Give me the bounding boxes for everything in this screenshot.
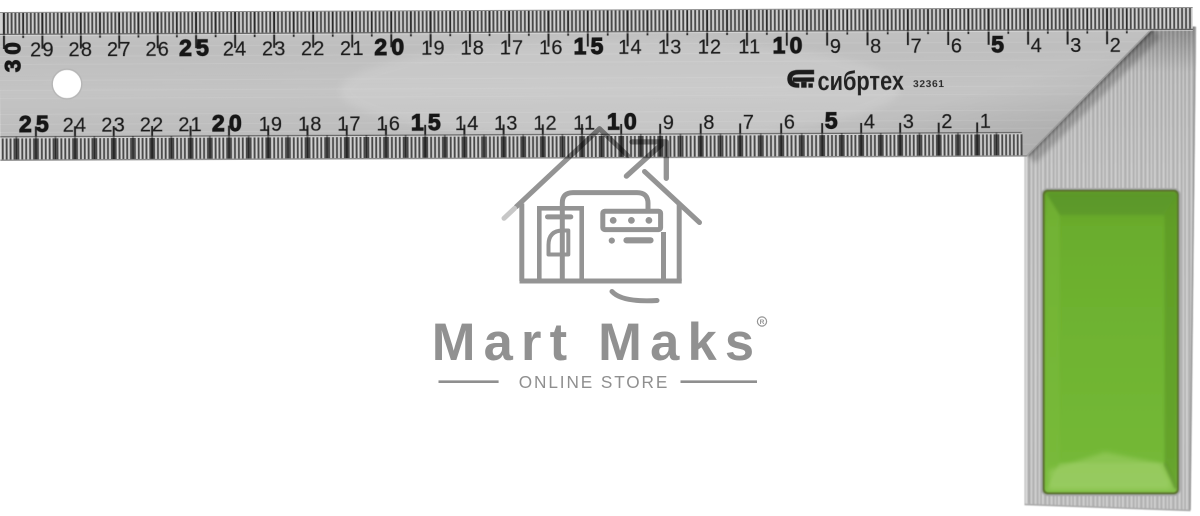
- svg-text:21: 21: [340, 38, 365, 60]
- svg-text:24: 24: [63, 115, 88, 137]
- svg-text:20: 20: [212, 110, 246, 136]
- svg-text:22: 22: [301, 38, 326, 60]
- svg-text:7: 7: [910, 36, 922, 58]
- svg-text:10: 10: [773, 32, 807, 58]
- svg-text:25: 25: [179, 35, 213, 61]
- svg-text:15: 15: [574, 33, 608, 59]
- svg-text:19: 19: [259, 114, 284, 136]
- svg-text:27: 27: [107, 39, 132, 61]
- svg-text:14: 14: [455, 113, 480, 135]
- svg-text:16: 16: [539, 37, 564, 59]
- svg-text:24: 24: [223, 38, 248, 60]
- svg-text:11: 11: [738, 36, 761, 58]
- svg-text:7: 7: [743, 112, 755, 134]
- svg-text:17: 17: [337, 114, 362, 136]
- svg-text:25: 25: [19, 111, 53, 137]
- svg-text:5: 5: [825, 108, 842, 134]
- svg-text:12: 12: [698, 36, 723, 58]
- svg-text:19: 19: [421, 38, 446, 60]
- svg-text:3: 3: [1070, 35, 1082, 57]
- svg-text:2: 2: [1110, 35, 1122, 57]
- svg-text:30: 30: [0, 37, 25, 72]
- svg-text:20: 20: [374, 34, 408, 60]
- svg-text:32361: 32361: [913, 79, 945, 90]
- svg-text:R: R: [760, 319, 765, 326]
- svg-text:4: 4: [1031, 35, 1043, 57]
- svg-text:17: 17: [500, 37, 525, 59]
- svg-text:16: 16: [376, 114, 401, 136]
- svg-text:14: 14: [618, 37, 643, 59]
- svg-text:6: 6: [784, 112, 796, 134]
- svg-text:2: 2: [941, 111, 953, 133]
- svg-text:29: 29: [30, 39, 55, 61]
- svg-text:23: 23: [101, 115, 126, 137]
- svg-text:9: 9: [663, 112, 675, 134]
- svg-text:8: 8: [870, 36, 882, 58]
- svg-text:10: 10: [607, 109, 641, 135]
- svg-text:22: 22: [140, 115, 165, 137]
- svg-text:26: 26: [145, 39, 170, 61]
- svg-text:Mart Maks: Mart Maks: [432, 313, 763, 372]
- svg-text:9: 9: [830, 36, 842, 58]
- svg-text:сибртех: сибртех: [817, 66, 904, 96]
- svg-text:18: 18: [298, 114, 323, 136]
- svg-text:12: 12: [533, 113, 558, 135]
- svg-text:13: 13: [658, 37, 683, 59]
- svg-text:3: 3: [903, 111, 915, 133]
- svg-text:13: 13: [494, 113, 519, 135]
- svg-text:5: 5: [991, 31, 1008, 57]
- svg-text:4: 4: [864, 112, 876, 134]
- svg-text:8: 8: [703, 112, 715, 134]
- svg-text:1: 1: [980, 111, 992, 133]
- svg-text:21: 21: [178, 114, 203, 136]
- svg-text:23: 23: [262, 38, 287, 60]
- svg-text:ONLINE STORE: ONLINE STORE: [519, 372, 669, 392]
- svg-text:28: 28: [68, 39, 93, 61]
- svg-text:6: 6: [951, 35, 963, 57]
- svg-text:15: 15: [411, 109, 445, 135]
- svg-text:18: 18: [460, 37, 485, 59]
